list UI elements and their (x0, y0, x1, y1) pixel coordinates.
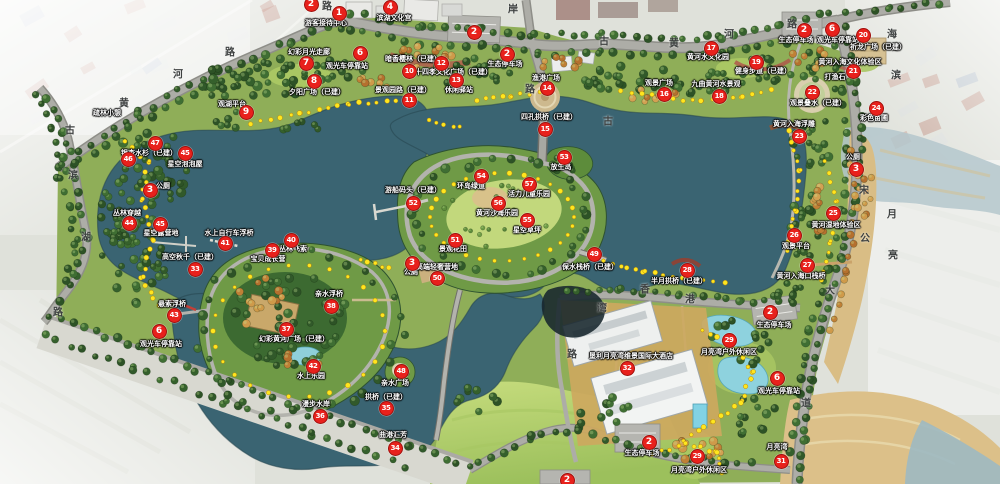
road-name-character: 黄 (669, 35, 679, 50)
marker-number: 29 (693, 450, 702, 462)
road-name-character: 月 (887, 206, 897, 221)
map-marker-16: 16 (657, 87, 672, 102)
marker-number: 6 (829, 23, 835, 35)
map-marker-6: 6 (152, 324, 167, 339)
map-marker-6: 6 (770, 371, 785, 386)
map-marker-17: 17 (704, 41, 719, 56)
map-marker-1: 1 (332, 6, 347, 21)
marker-number: 29 (725, 334, 734, 346)
map-marker-2: 2 (560, 473, 575, 484)
road-name-character: 路 (225, 44, 235, 59)
map-marker-47: 47 (148, 136, 163, 151)
road-name-character: 河 (173, 66, 183, 81)
marker-number: 46 (124, 153, 133, 165)
marker-number: 27 (803, 259, 812, 271)
marker-label: 月亮湾 (767, 442, 788, 452)
road-name-character: 道 (801, 395, 811, 410)
marker-number: 40 (287, 234, 296, 246)
road-name-character: 公 (860, 230, 870, 245)
marker-label: 祈龙广场（已建） (850, 42, 906, 52)
map-marker-7: 7 (299, 56, 314, 71)
map-marker-19: 19 (749, 55, 764, 70)
map-marker-14: 14 (540, 81, 555, 96)
marker-label: 星空泡泡屋 (168, 159, 203, 169)
map-marker-52: 52 (406, 196, 421, 211)
marker-number: 35 (382, 402, 391, 414)
road-name-character: 滨 (891, 67, 901, 82)
road-name-character: 亮 (888, 247, 898, 262)
road-name-character: 大 (825, 282, 835, 297)
marker-label: 健身步道（已建） (735, 66, 791, 76)
road-name-character: 香 (640, 281, 650, 296)
marker-label: 漫步水岸 (302, 399, 330, 409)
marker-label: 月亮湾户外休闲区 (701, 347, 757, 357)
map-marker-53: 53 (557, 150, 572, 165)
marker-number: 44 (125, 217, 134, 229)
marker-label: 四孔拱桥（已建） (521, 112, 577, 122)
map-marker-40: 40 (284, 233, 299, 248)
map-marker-38: 38 (324, 299, 339, 314)
marker-number: 50 (433, 272, 442, 284)
marker-label: 观光车停靠站 (140, 339, 182, 349)
marker-number: 54 (477, 170, 486, 182)
marker-label: 滨湖文化宫 (377, 13, 412, 23)
map-marker-42: 42 (306, 359, 321, 374)
map-marker-55: 55 (520, 213, 535, 228)
map-marker-31: 31 (774, 454, 789, 469)
marker-number: 56 (494, 197, 503, 209)
road-name-character: 滨 (68, 167, 78, 182)
road-name-character: 宋 (859, 182, 869, 197)
map-marker-2: 2 (304, 0, 319, 12)
marker-label: 幻彩黄河广场（已建） (259, 334, 329, 344)
map-marker-43: 43 (167, 308, 182, 323)
map-marker-24: 24 (869, 101, 884, 116)
road-name-character: 古 (65, 122, 75, 137)
marker-number: 3 (409, 257, 415, 269)
road-name-character: 古 (599, 33, 609, 48)
marker-number: 48 (397, 365, 406, 377)
marker-number: 14 (543, 82, 552, 94)
marker-label: 亲水浮桥 (315, 289, 343, 299)
road-name-character: 港 (685, 291, 695, 306)
marker-label: 亲水广场 (381, 378, 409, 388)
marker-number: 34 (391, 442, 400, 454)
map-marker-4: 4 (383, 0, 398, 15)
marker-number: 9 (243, 106, 249, 118)
marker-number: 2 (471, 26, 477, 38)
marker-number: 45 (156, 218, 165, 230)
map-marker-3: 3 (143, 183, 158, 198)
marker-number: 11 (405, 94, 414, 106)
map-marker-48: 48 (394, 364, 409, 379)
marker-label: 半月拱桥（已建） (651, 276, 707, 286)
marker-number: 3 (853, 163, 859, 175)
marker-number: 4 (387, 1, 393, 13)
map-marker-8: 8 (307, 74, 322, 89)
marker-label: 垦利月亮湾维景国际大酒店 (589, 351, 673, 361)
marker-number: 19 (752, 56, 761, 68)
map-marker-36: 36 (313, 409, 328, 424)
marker-number: 15 (541, 123, 550, 135)
marker-number: 45 (181, 147, 190, 159)
marker-label: 公厕 (846, 152, 860, 162)
marker-number: 12 (437, 57, 446, 69)
marker-label: 观景叠水（已建） (790, 98, 846, 108)
marker-label: 黄河入海口栈桥 (777, 271, 826, 281)
park-master-plan-map: 21游客接待中心4滨湖文化宫22生态停车场6观光车停靠站7幻彩月光走廊8夕阳广场… (0, 0, 1000, 484)
road-name-character: 路 (53, 304, 63, 319)
marker-number: 8 (311, 75, 317, 87)
map-marker-11: 11 (402, 93, 417, 108)
map-marker-39: 39 (265, 243, 280, 258)
map-marker-37: 37 (279, 322, 294, 337)
map-marker-51: 51 (448, 233, 463, 248)
marker-label: 夕阳广场（已建） (289, 87, 345, 97)
road-name-character: 海 (887, 26, 897, 41)
map-marker-34: 34 (388, 441, 403, 456)
marker-number: 42 (309, 360, 318, 372)
marker-number: 20 (859, 29, 868, 41)
marker-number: 6 (774, 372, 780, 384)
marker-label: 保水栈桥（已建） (562, 262, 618, 272)
map-marker-29: 29 (722, 333, 737, 348)
map-marker-49: 49 (587, 247, 602, 262)
marker-label: 观光车停靠站 (326, 61, 368, 71)
marker-label: 游船码头（已建） (385, 185, 441, 195)
marker-label: 九曲黄河水景观 (692, 79, 741, 89)
marker-label: 公厕 (156, 181, 170, 191)
road-name-character: 路 (322, 0, 332, 13)
map-marker-2: 2 (500, 47, 515, 62)
map-marker-45: 45 (153, 217, 168, 232)
marker-label: 暗香樱林（已建） (385, 54, 441, 64)
map-marker-28: 28 (680, 263, 695, 278)
marker-label: 月亮湾户外休闲区 (671, 465, 727, 475)
marker-number: 55 (523, 214, 532, 226)
marker-number: 23 (795, 130, 804, 142)
marker-number: 3 (147, 184, 153, 196)
marker-label: 景观园路（已建） (375, 85, 431, 95)
marker-number: 41 (221, 237, 230, 249)
marker-number: 26 (790, 229, 799, 241)
marker-number: 31 (777, 455, 786, 467)
map-marker-32: 32 (620, 361, 635, 376)
marker-number: 1 (336, 7, 342, 19)
map-marker-26: 26 (787, 228, 802, 243)
map-marker-12: 12 (434, 56, 449, 71)
map-marker-44: 44 (122, 216, 137, 231)
marker-number: 33 (191, 263, 200, 275)
marker-number: 6 (156, 325, 162, 337)
marker-number: 32 (623, 362, 632, 374)
marker-number: 6 (357, 47, 363, 59)
map-marker-35: 35 (379, 401, 394, 416)
road-name-character: 古 (603, 113, 613, 128)
road-name-character: 河 (724, 26, 734, 41)
marker-number: 53 (560, 151, 569, 163)
map-marker-22: 22 (805, 85, 820, 100)
map-marker-27: 27 (800, 258, 815, 273)
marker-label: 观景广场 (645, 78, 673, 88)
map-marker-21: 21 (846, 64, 861, 79)
map-marker-46: 46 (121, 152, 136, 167)
marker-label: 黄河湿地体验区 (812, 220, 861, 230)
map-marker-33: 33 (188, 262, 203, 277)
marker-number: 22 (808, 86, 817, 98)
map-marker-18: 18 (712, 89, 727, 104)
marker-label: 观光车停靠站 (758, 386, 800, 396)
road-name-character: 湾 (597, 300, 607, 315)
marker-number: 37 (282, 323, 291, 335)
map-marker-9: 9 (239, 105, 254, 120)
road-name-character: 湖 (81, 229, 91, 244)
map-marker-2: 2 (467, 25, 482, 40)
road-name-character: 路 (567, 346, 577, 361)
marker-label: 生态停车场 (757, 320, 792, 330)
map-annotation: 打渔石 (825, 72, 846, 82)
map-marker-2: 2 (763, 305, 778, 320)
marker-label: 生态停车场 (625, 448, 660, 458)
map-marker-3: 3 (849, 162, 864, 177)
map-marker-2: 2 (642, 435, 657, 450)
map-marker-50: 50 (430, 271, 445, 286)
marker-number: 16 (660, 88, 669, 100)
marker-number: 52 (409, 197, 418, 209)
marker-number: 36 (316, 410, 325, 422)
map-marker-13: 13 (449, 73, 464, 88)
marker-number: 25 (829, 207, 838, 219)
map-marker-56: 56 (491, 196, 506, 211)
marker-number: 2 (801, 24, 807, 36)
map-marker-6: 6 (353, 46, 368, 61)
marker-number: 2 (767, 306, 773, 318)
marker-number: 2 (308, 0, 314, 10)
marker-number: 49 (590, 248, 599, 260)
marker-number: 43 (170, 309, 179, 321)
marker-number: 38 (327, 300, 336, 312)
marker-number: 7 (303, 57, 309, 69)
map-marker-10: 10 (402, 64, 417, 79)
map-marker-54: 54 (474, 169, 489, 184)
marker-number: 47 (151, 137, 160, 149)
marker-number: 39 (268, 244, 277, 256)
marker-number: 18 (715, 90, 724, 102)
marker-number: 2 (504, 48, 510, 60)
marker-number: 2 (646, 436, 652, 448)
marker-label: 观景平台 (782, 241, 810, 251)
map-marker-20: 20 (856, 28, 871, 43)
marker-number: 21 (849, 65, 858, 77)
map-marker-23: 23 (792, 129, 807, 144)
map-marker-3: 3 (405, 256, 420, 271)
map-marker-57: 57 (522, 177, 537, 192)
marker-number: 24 (872, 102, 881, 114)
marker-number: 10 (405, 65, 414, 77)
map-marker-29: 29 (690, 449, 705, 464)
marker-label: 疏林小憩 (93, 108, 121, 118)
marker-number: 57 (525, 178, 534, 190)
map-marker-2: 2 (797, 23, 812, 38)
map-marker-25: 25 (826, 206, 841, 221)
marker-label: 黄河入海浮雕 (773, 119, 815, 129)
marker-number: 13 (452, 74, 461, 86)
map-marker-15: 15 (538, 122, 553, 137)
marker-number: 51 (451, 234, 460, 246)
road-name-character: 岸 (508, 1, 518, 16)
marker-label: 高空秋千（已建） (162, 252, 218, 262)
map-overlay: 21游客接待中心4滨湖文化宫22生态停车场6观光车停靠站7幻彩月光走廊8夕阳广场… (0, 0, 1000, 484)
map-marker-6: 6 (825, 22, 840, 37)
marker-number: 17 (707, 42, 716, 54)
marker-label: 曲港汇芳 (379, 430, 407, 440)
marker-number: 2 (564, 474, 570, 484)
marker-number: 28 (683, 264, 692, 276)
map-marker-41: 41 (218, 236, 233, 251)
road-name-character: 路 (787, 16, 797, 31)
map-marker-45: 45 (178, 146, 193, 161)
